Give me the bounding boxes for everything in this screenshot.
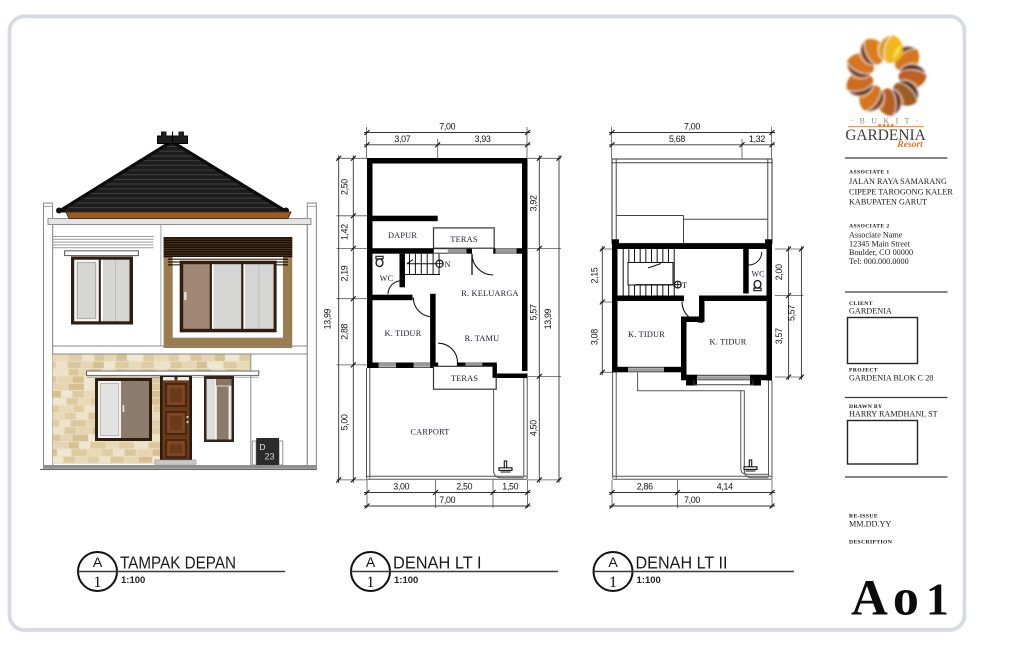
svg-text:D: D [259,442,265,452]
svg-text:ASSOCIATE 1: ASSOCIATE 1 [849,170,890,176]
svg-text:1:100: 1:100 [637,575,661,586]
svg-text:· B U K I T ·: · B U K I T · [850,117,920,126]
svg-text:KABUPATEN GARUT: KABUPATEN GARUT [849,198,927,207]
svg-text:A: A [93,554,103,570]
svg-text:2,88: 2,88 [340,323,350,339]
svg-text:3,08: 3,08 [589,329,599,345]
svg-text:3,93: 3,93 [475,134,491,144]
svg-text:1: 1 [367,574,375,591]
svg-text:WC: WC [752,270,765,279]
svg-text:DENAH LT I: DENAH LT I [393,553,482,573]
svg-text:1:100: 1:100 [121,575,145,586]
svg-text:R. TAMU: R. TAMU [465,334,500,343]
svg-text:3,07: 3,07 [394,134,410,144]
svg-text:5,57: 5,57 [528,304,538,320]
svg-text:1,42: 1,42 [340,224,350,240]
svg-text:1: 1 [609,574,617,591]
svg-text:N: N [445,260,451,269]
svg-text:4,50: 4,50 [528,420,538,436]
svg-text:13,99: 13,99 [323,308,333,329]
svg-text:2,86: 2,86 [637,482,653,492]
svg-text:A: A [608,554,618,570]
svg-text:2,50: 2,50 [456,482,472,492]
svg-text:Ao1: Ao1 [851,570,949,627]
svg-text:1,50: 1,50 [502,482,518,492]
svg-text:13,99: 13,99 [543,308,553,329]
svg-text:2,19: 2,19 [340,265,350,281]
svg-text:WC: WC [380,274,394,283]
svg-text:HARRY RAMDHANI, ST: HARRY RAMDHANI, ST [849,410,938,419]
svg-text:1,32: 1,32 [749,134,765,144]
svg-text:CARPORT: CARPORT [410,428,449,437]
svg-text:5,57: 5,57 [787,305,797,321]
svg-text:7,00: 7,00 [439,495,455,505]
svg-text:TERAS: TERAS [450,235,477,244]
svg-text:TAMPAK DEPAN: TAMPAK DEPAN [120,553,236,573]
svg-text:DAPUR: DAPUR [388,231,417,240]
svg-text:23: 23 [264,452,274,462]
svg-text:GARDENIA: GARDENIA [849,307,892,316]
svg-text:5,00: 5,00 [340,414,350,430]
svg-text:Tel: 000.000.0000: Tel: 000.000.0000 [849,257,909,266]
svg-text:A: A [366,554,376,570]
svg-text:Associate Name: Associate Name [849,231,903,240]
svg-text:DESCRIPTION: DESCRIPTION [849,540,892,546]
svg-text:DENAH LT II: DENAH LT II [636,553,728,573]
svg-text:2,15: 2,15 [589,267,599,283]
svg-text:JALAN RAYA SAMARANG: JALAN RAYA SAMARANG [849,177,947,186]
svg-text:Resort: Resort [896,139,923,150]
svg-text:Boulder, CO 00000: Boulder, CO 00000 [849,248,913,257]
svg-text:TERAS: TERAS [451,374,478,383]
svg-text:7,00: 7,00 [439,122,455,132]
svg-text:ASSOCIATE 2: ASSOCIATE 2 [849,224,890,230]
svg-text:12345 Main Street: 12345 Main Street [849,239,911,248]
svg-text:3,57: 3,57 [774,328,784,344]
svg-text:2,00: 2,00 [774,264,784,280]
svg-text:K. TIDUR: K. TIDUR [385,329,422,338]
svg-text:CIPEPE TAROGONG KALER: CIPEPE TAROGONG KALER [849,187,953,196]
svg-text:7,00: 7,00 [684,495,700,505]
svg-text:K. TIDUR: K. TIDUR [710,338,747,347]
svg-text:7,00: 7,00 [684,122,700,132]
svg-text:5,68: 5,68 [669,134,685,144]
svg-text:3,92: 3,92 [528,195,538,211]
svg-text:R. KELUARGA: R. KELUARGA [461,289,519,298]
svg-text:1:100: 1:100 [394,575,418,586]
svg-text:4,14: 4,14 [717,482,733,492]
svg-text:T: T [682,281,687,290]
svg-text:1: 1 [94,574,102,591]
svg-text:GARDENIA BLOK C 28: GARDENIA BLOK C 28 [849,374,933,383]
svg-text:MM.DD.YY: MM.DD.YY [849,520,891,529]
svg-text:2,50: 2,50 [340,179,350,195]
svg-text:3,00: 3,00 [393,482,409,492]
svg-text:K. TIDUR: K. TIDUR [628,330,665,339]
